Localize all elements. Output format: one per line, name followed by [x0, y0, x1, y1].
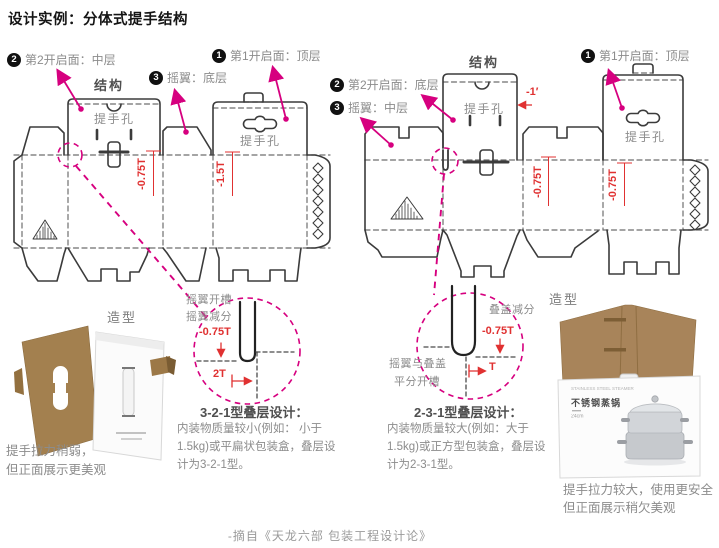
annotation-right-wing: 3 摇翼：中层	[330, 99, 408, 116]
right-caption-line1: 提手拉力较大，使用更安全	[563, 479, 713, 498]
source-citation: -摘自《天龙六部 包装工程设计论》	[160, 527, 500, 544]
annotation-left-wing: 3 摇翼：底层	[149, 69, 227, 86]
wing-lid-note-line1: 摇翼与叠盖	[389, 355, 447, 371]
annotation-right-open2: 2 第2开启面：底层	[330, 76, 439, 93]
badge-number-1: 1	[581, 49, 595, 63]
annotation-label: 摇翼：底层	[167, 69, 227, 86]
annotation-right-open1: 1 第1开启面：顶层	[581, 47, 690, 64]
lid-reduce-note: 叠盖减分	[489, 301, 535, 317]
box-print-en: STAINLESS STEEL STEAMER	[571, 387, 634, 392]
badge-number-3: 3	[149, 71, 163, 85]
badge-number-1: 1	[212, 49, 226, 63]
left-caption-line2: 但正面展示更美观	[6, 459, 106, 478]
packaging-design-page: 设计实例：分体式提手结构 2 第2开启面：中层 结构 3 摇翼：底层 1 第1开…	[0, 0, 719, 548]
box-print-size: 24cm	[571, 414, 583, 419]
handle-hole-label: 提手孔	[240, 132, 281, 149]
wing-lid-note-line2: 平分开槽	[394, 373, 440, 389]
annotation-label: 第2开启面：底层	[348, 76, 439, 93]
dim-offset-label: -0.75T	[607, 169, 619, 201]
annotation-label: 第2开启面：中层	[25, 51, 116, 68]
right-photo-illustration	[558, 305, 700, 478]
right-stack-body: 内装物质量较大(例如：大于1.5kg)或正方型包装盒，叠层设计为2-3-1型。	[387, 421, 553, 474]
right-shape-label: 造型	[549, 289, 579, 308]
annotation-label: 摇翼：中层	[348, 99, 408, 116]
badge-number-2: 2	[7, 53, 21, 67]
badge-number-3: 3	[330, 101, 344, 115]
right-stack-heading: 2-3-1型叠层设计：	[414, 402, 522, 421]
badge-number-2: 2	[330, 78, 344, 92]
left-dieline-drawing	[14, 93, 330, 281]
annotation-label: 第1开启面：顶层	[599, 47, 690, 64]
handle-hole-label: 提手孔	[94, 110, 135, 127]
dim-offset-label: -0.75T	[532, 166, 544, 198]
detail-dim-width: T	[489, 361, 496, 373]
dim-offset-label: -0.75T	[136, 158, 148, 190]
dim-minus-1: -1′	[526, 86, 538, 98]
left-structure-label: 结构	[94, 75, 124, 94]
wing-reduce-note: 摇翼减分	[186, 308, 232, 324]
annotation-left-open2: 2 第2开启面：中层	[7, 51, 116, 68]
dim-offset-label: -1.5T	[215, 161, 227, 187]
right-structure-label: 结构	[469, 52, 499, 71]
detail-dim-depth: -0.75T	[482, 325, 514, 337]
detail-dim-depth: -0.75T	[199, 326, 231, 338]
handle-hole-label: 提手孔	[464, 100, 505, 117]
wing-slot-note: 摇翼开槽	[186, 291, 232, 307]
left-stack-heading: 3-2-1型叠层设计：	[200, 402, 308, 421]
annotation-label: 第1开启面：顶层	[230, 47, 321, 64]
detail-dim-width: 2T	[213, 368, 226, 380]
right-caption-line2: 但正面展示稍欠美观	[563, 497, 676, 516]
annotation-left-open1: 1 第1开启面：顶层	[212, 47, 321, 64]
page-title: 设计实例：分体式提手结构	[8, 8, 188, 29]
box-print-cn: 不锈钢蒸锅	[571, 396, 621, 409]
left-caption-line1: 提手拉力稍弱，	[6, 440, 94, 459]
left-stack-body: 内装物质量较小(例如： 小于1.5kg)或平扁状包装盒，叠层设计为3-2-1型。	[177, 421, 341, 474]
handle-hole-label: 提手孔	[625, 128, 666, 145]
left-shape-label: 造型	[107, 307, 137, 326]
